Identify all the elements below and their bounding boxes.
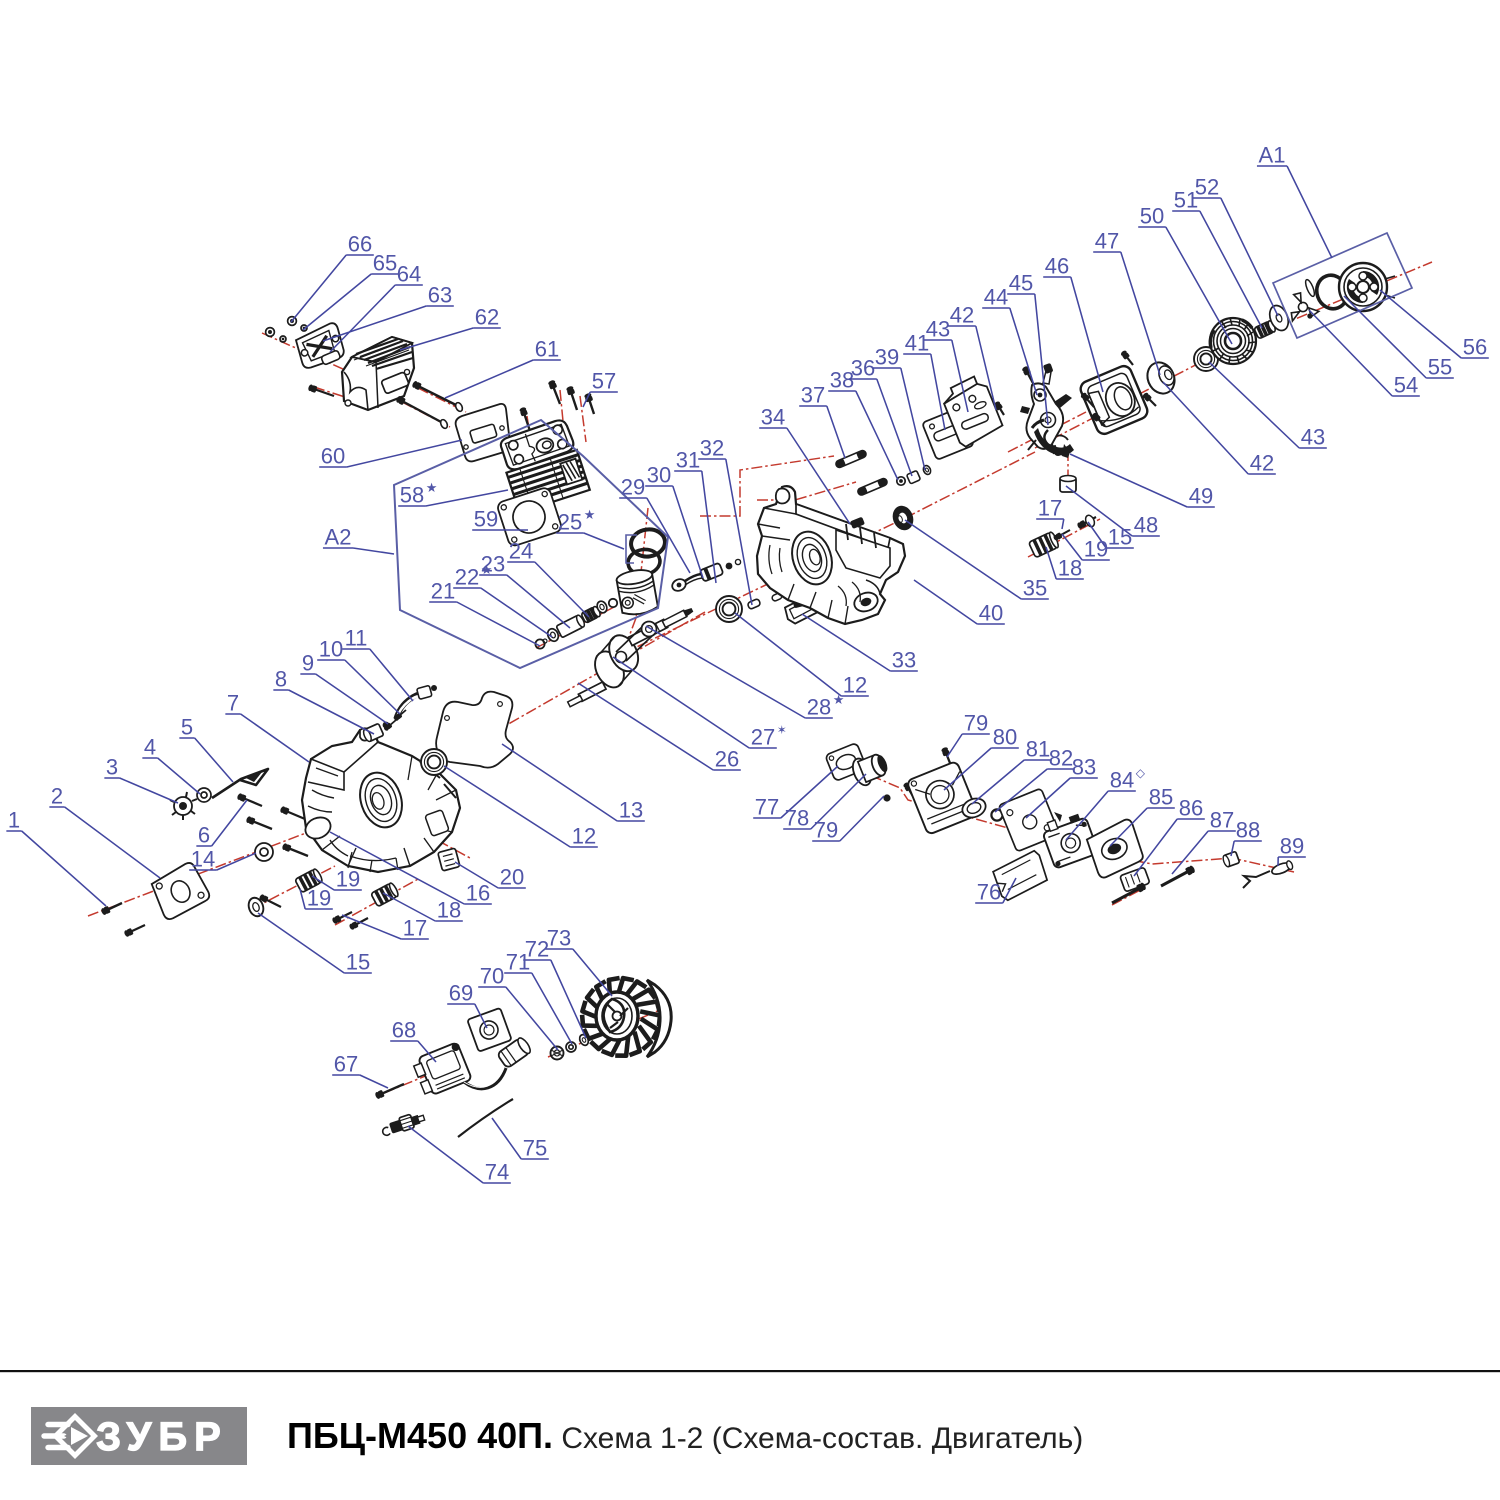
svg-text:9: 9 — [302, 651, 314, 676]
svg-text:71: 71 — [506, 950, 530, 975]
svg-text:52: 52 — [1195, 175, 1219, 200]
svg-text:ПБЦ-М450 40П. Схема 1-2 (Схема: ПБЦ-М450 40П. Схема 1-2 (Схема-состав. Д… — [287, 1415, 1083, 1456]
svg-text:76: 76 — [977, 880, 1001, 905]
svg-text:75: 75 — [523, 1136, 547, 1161]
svg-text:77: 77 — [755, 795, 779, 820]
svg-text:A2: A2 — [325, 525, 352, 550]
svg-text:★: ★ — [584, 507, 596, 522]
svg-text:44: 44 — [984, 285, 1008, 310]
svg-text:15: 15 — [346, 950, 370, 975]
svg-text:32: 32 — [700, 436, 724, 461]
svg-text:78: 78 — [785, 806, 809, 831]
svg-text:56: 56 — [1463, 335, 1487, 360]
svg-text:61: 61 — [535, 337, 559, 362]
svg-text:50: 50 — [1140, 204, 1164, 229]
svg-text:70: 70 — [480, 964, 504, 989]
svg-text:✶: ✶ — [777, 723, 787, 737]
svg-text:5: 5 — [181, 715, 193, 740]
svg-text:1: 1 — [8, 808, 20, 833]
svg-text:2: 2 — [51, 784, 63, 809]
svg-text:39: 39 — [875, 345, 899, 370]
svg-text:31: 31 — [676, 448, 700, 473]
svg-text:7: 7 — [227, 691, 239, 716]
svg-text:18: 18 — [437, 898, 461, 923]
svg-text:17: 17 — [403, 916, 427, 941]
svg-text:29: 29 — [621, 475, 645, 500]
svg-text:22: 22 — [455, 565, 479, 590]
svg-text:85: 85 — [1149, 785, 1173, 810]
svg-text:86: 86 — [1179, 796, 1203, 821]
svg-text:42: 42 — [950, 303, 974, 328]
svg-text:19: 19 — [1084, 537, 1108, 562]
svg-text:24: 24 — [509, 539, 533, 564]
svg-text:65: 65 — [373, 251, 397, 276]
svg-text:62: 62 — [475, 305, 499, 330]
svg-text:68: 68 — [392, 1018, 416, 1043]
svg-text:11: 11 — [345, 626, 368, 651]
svg-text:16: 16 — [466, 881, 490, 906]
svg-text:87: 87 — [1210, 808, 1234, 833]
svg-text:81: 81 — [1026, 737, 1050, 762]
svg-text:55: 55 — [1428, 355, 1452, 380]
svg-text:58: 58 — [400, 483, 424, 508]
svg-text:25: 25 — [558, 510, 582, 535]
svg-text:64: 64 — [397, 262, 421, 287]
svg-text:★: ★ — [426, 480, 438, 495]
svg-text:73: 73 — [547, 926, 571, 951]
svg-text:88: 88 — [1236, 818, 1260, 843]
svg-text:12: 12 — [572, 824, 596, 849]
svg-text:19: 19 — [307, 886, 331, 911]
svg-text:6: 6 — [198, 823, 210, 848]
svg-text:35: 35 — [1023, 576, 1047, 601]
svg-text:34: 34 — [761, 405, 785, 430]
svg-text:28: 28 — [807, 695, 831, 720]
svg-text:★: ★ — [481, 562, 493, 577]
svg-text:A1: A1 — [1259, 143, 1286, 168]
svg-text:60: 60 — [321, 444, 345, 469]
svg-text:42: 42 — [1250, 451, 1274, 476]
svg-text:84: 84 — [1110, 768, 1134, 793]
svg-text:43: 43 — [1301, 425, 1325, 450]
svg-text:18: 18 — [1058, 556, 1082, 581]
svg-text:★: ★ — [833, 692, 845, 707]
svg-text:33: 33 — [892, 648, 916, 673]
svg-text:49: 49 — [1189, 484, 1213, 509]
svg-text:66: 66 — [348, 232, 372, 257]
svg-text:82: 82 — [1049, 746, 1073, 771]
svg-text:47: 47 — [1095, 229, 1119, 254]
svg-text:79: 79 — [814, 818, 838, 843]
svg-text:79: 79 — [964, 711, 988, 736]
svg-text:36: 36 — [851, 356, 875, 381]
svg-text:21: 21 — [431, 579, 455, 604]
svg-text:57: 57 — [592, 369, 616, 394]
svg-text:17: 17 — [1038, 496, 1062, 521]
svg-text:40: 40 — [979, 601, 1003, 626]
svg-text:◇: ◇ — [1136, 766, 1146, 780]
svg-text:26: 26 — [715, 747, 739, 772]
svg-text:45: 45 — [1009, 271, 1033, 296]
svg-text:8: 8 — [275, 667, 287, 692]
svg-text:48: 48 — [1134, 513, 1158, 538]
svg-text:46: 46 — [1045, 254, 1069, 279]
svg-text:63: 63 — [428, 283, 452, 308]
svg-text:89: 89 — [1280, 834, 1304, 859]
svg-text:59: 59 — [474, 507, 498, 532]
svg-text:20: 20 — [500, 865, 524, 890]
svg-text:69: 69 — [449, 981, 473, 1006]
svg-text:80: 80 — [993, 725, 1017, 750]
svg-text:13: 13 — [619, 798, 643, 823]
svg-text:ЗУБР: ЗУБР — [96, 1415, 228, 1459]
svg-text:19: 19 — [336, 867, 360, 892]
svg-text:67: 67 — [334, 1052, 358, 1077]
svg-text:10: 10 — [319, 637, 343, 662]
svg-text:4: 4 — [144, 735, 156, 760]
svg-text:3: 3 — [106, 755, 118, 780]
svg-text:15: 15 — [1108, 525, 1132, 550]
svg-text:43: 43 — [926, 317, 950, 342]
svg-text:27: 27 — [751, 725, 775, 750]
svg-text:14: 14 — [191, 847, 215, 872]
svg-text:30: 30 — [647, 463, 671, 488]
svg-text:74: 74 — [485, 1160, 509, 1185]
svg-text:37: 37 — [801, 383, 825, 408]
svg-text:12: 12 — [843, 673, 867, 698]
svg-text:54: 54 — [1394, 373, 1418, 398]
svg-text:83: 83 — [1072, 755, 1096, 780]
